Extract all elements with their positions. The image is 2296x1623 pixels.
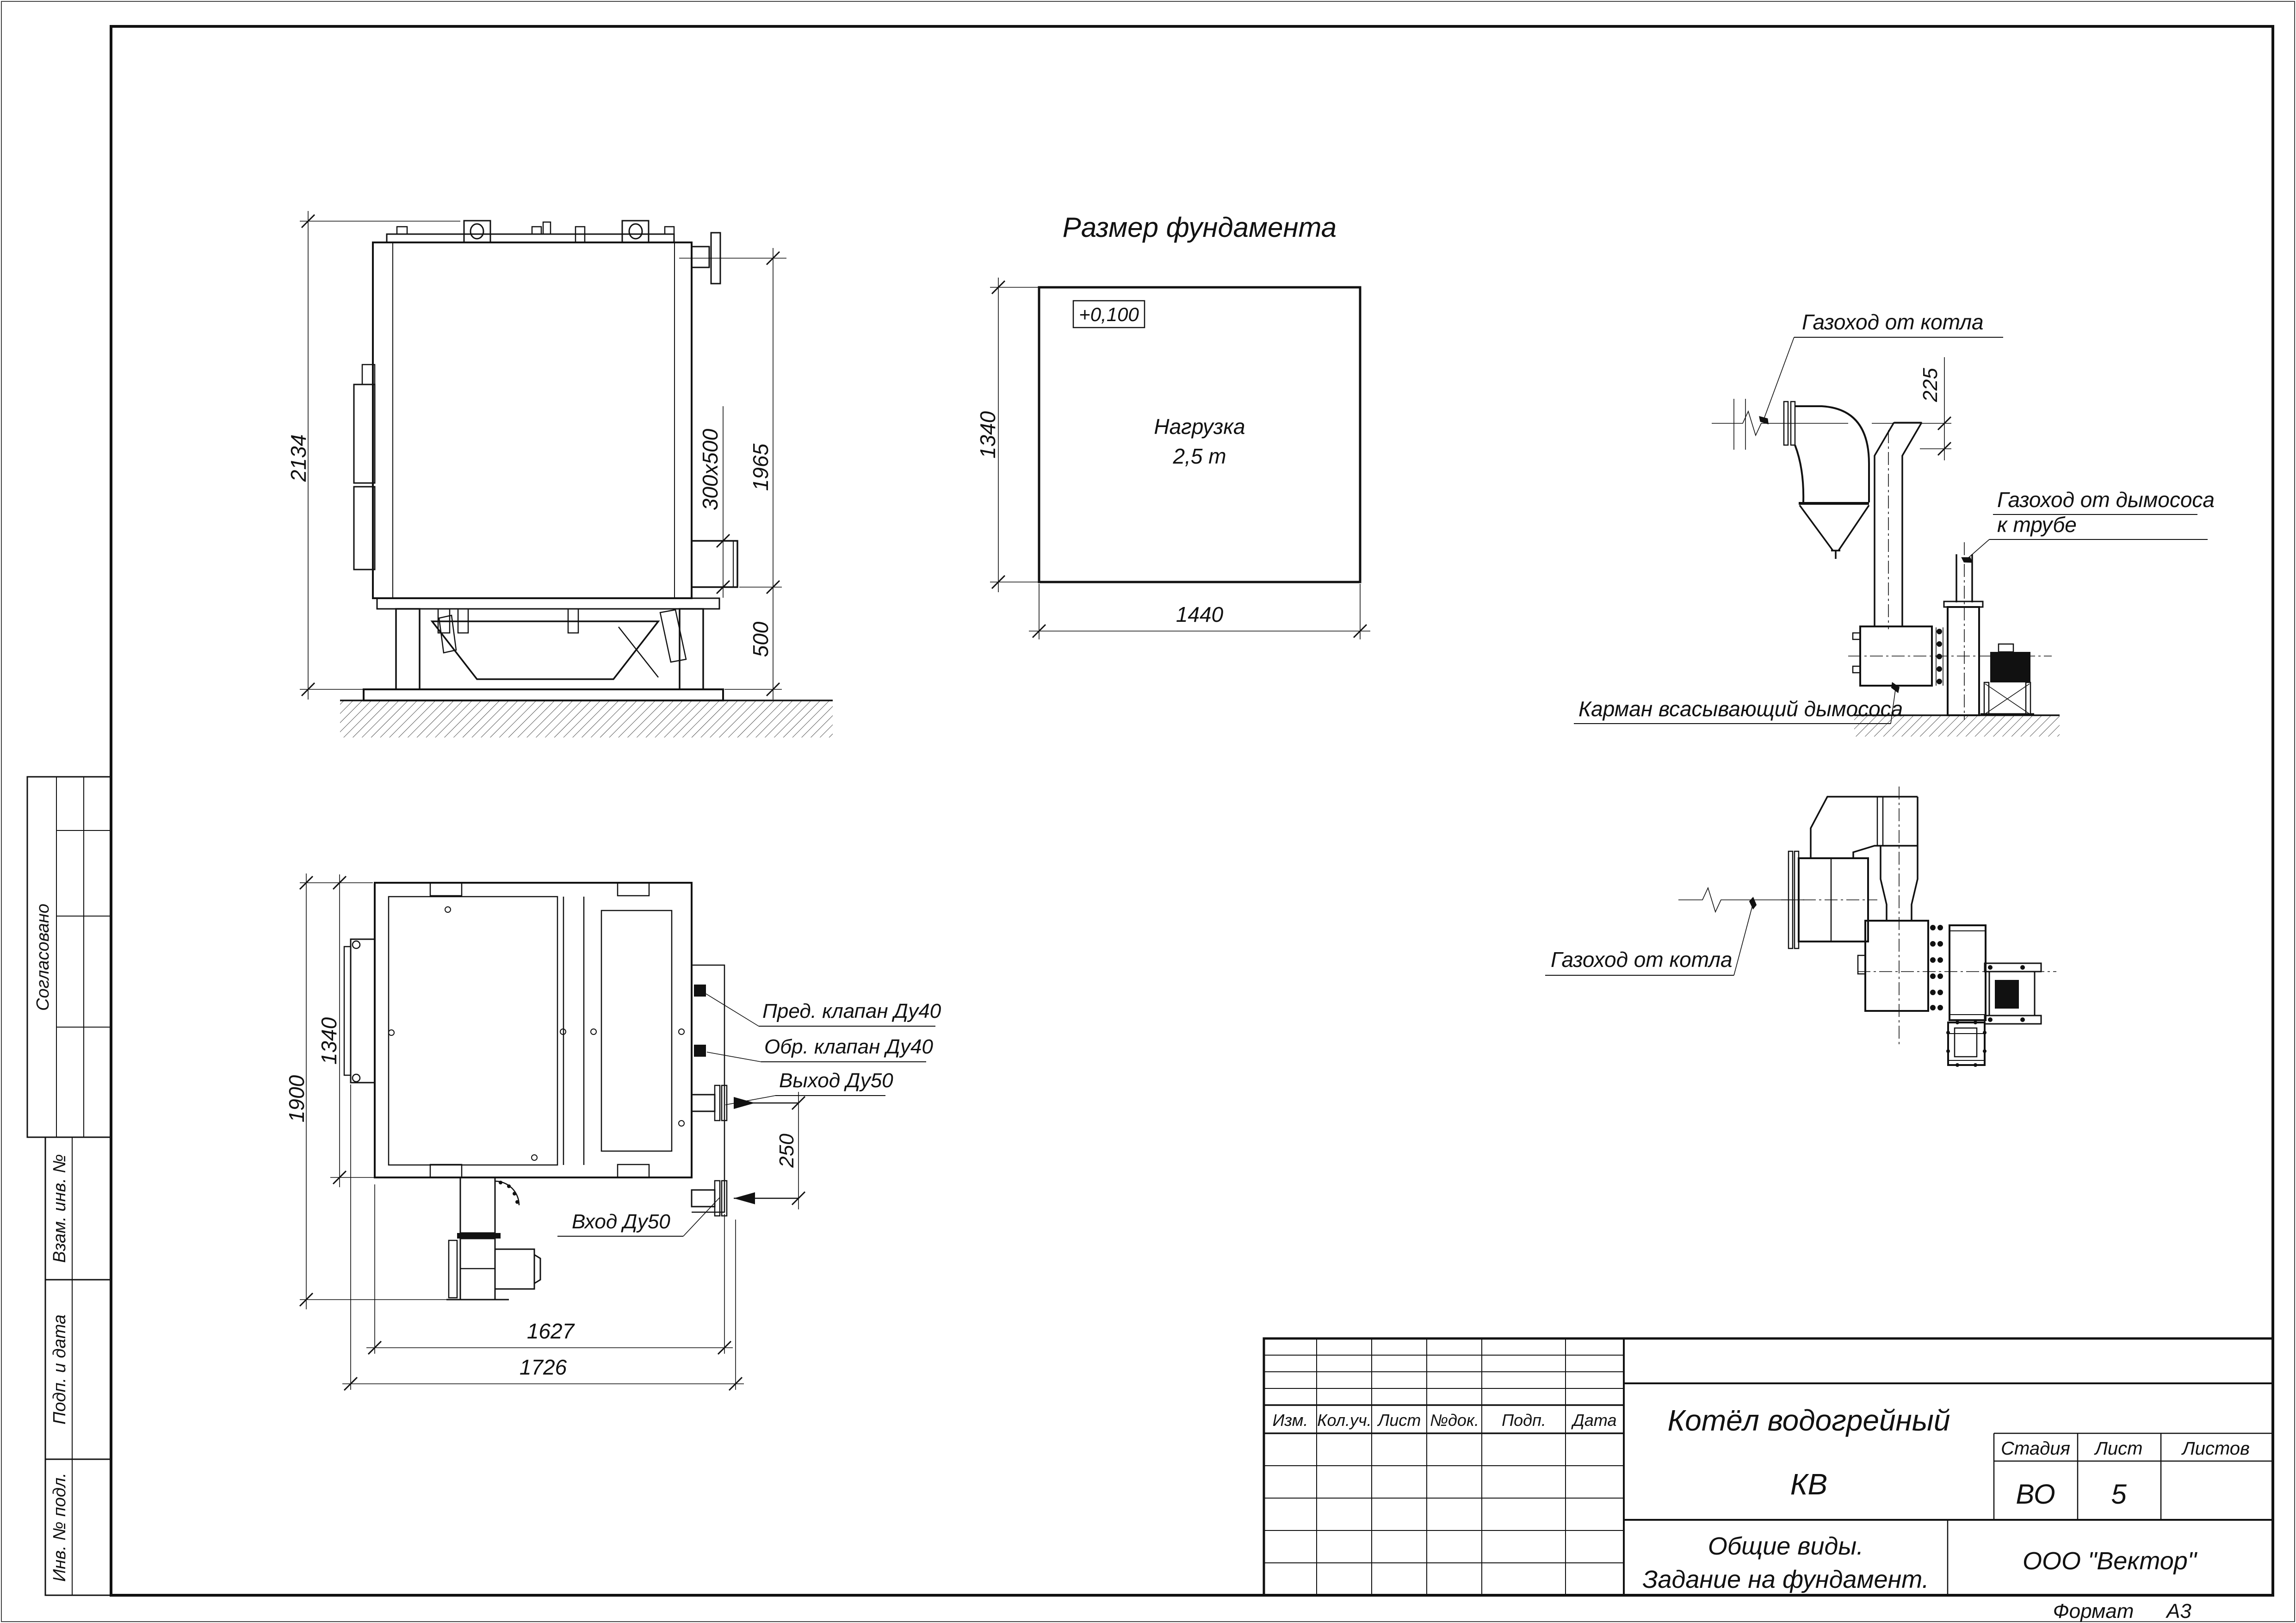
safety-valve (694, 985, 706, 997)
stamp-agreed-label: Согласовано (33, 904, 53, 1011)
sheet-value: 5 (2111, 1479, 2127, 1510)
flue-elev-label-boiler: Газоход от котла (1802, 310, 1984, 334)
dim-1900-label: 1900 (285, 1075, 309, 1122)
dim-225-label: 225 (1919, 368, 1942, 403)
sheets-label: Листов (2181, 1438, 2250, 1459)
flue-elev-label-pocket: Карман всасывающий дымососа (1578, 697, 1903, 721)
format-note: Формат А3 (2053, 1600, 2192, 1623)
dim-1340f-label: 1340 (976, 411, 1000, 458)
drawing-sheet: Согласовано Взам. инв. № Подп. и дата Ин… (0, 0, 2296, 1623)
format-label: Формат (2053, 1600, 2134, 1623)
sheet-label: Лист (2094, 1438, 2143, 1459)
dim-1627-label: 1627 (527, 1319, 575, 1343)
label-outlet: Выход Ду50 (779, 1069, 893, 1092)
label-check-valve: Обр. клапан Ду40 (764, 1035, 934, 1058)
ground-hatch (340, 700, 833, 737)
check-valve (694, 1045, 706, 1057)
label-safety-valve: Пред. клапан Ду40 (762, 1000, 941, 1022)
dim-2134-label: 2134 (286, 434, 310, 482)
col-podp: Подп. (1502, 1411, 1546, 1430)
stamp-inv-number-label: Инв. № подл. (50, 1473, 69, 1582)
col-izm: Изм. (1273, 1411, 1308, 1430)
level-mark: +0,100 (1079, 304, 1139, 325)
label-inlet: Вход Ду50 (572, 1210, 670, 1233)
format-value: А3 (2165, 1600, 2191, 1623)
sheet-edge (1, 1, 2295, 1622)
dim-1726-label: 1726 (520, 1355, 567, 1379)
foundation-title: Размер фундамента (1063, 212, 1337, 243)
stamp-sign-date-label: Подп. и дата (50, 1314, 69, 1425)
doc-title-2: КВ (1790, 1468, 1827, 1501)
col-list: Лист (1377, 1411, 1421, 1430)
dim-1965-label: 1965 (749, 443, 773, 491)
stage-value: ВО (2016, 1479, 2055, 1510)
flue-plan-label-boiler: Газоход от котла (1551, 948, 1733, 972)
company-name: ООО "Вектор" (2023, 1547, 2198, 1575)
flue-elev-label-stack-1: Газоход от дымососа (1997, 488, 2215, 512)
fan-motor (1990, 652, 2030, 682)
load-text-1: Нагрузка (1154, 415, 1245, 439)
subtitle-2: Задание на фундамент. (1642, 1566, 1929, 1593)
dim-1340p-label: 1340 (317, 1017, 341, 1065)
subtitle-1: Общие виды. (1708, 1532, 1863, 1560)
col-koluch: Кол.уч. (1317, 1411, 1371, 1430)
stamp-replace-inv-label: Взам. инв. № (50, 1154, 69, 1263)
flue-elev-label-stack-2: к трубе (1997, 513, 2077, 537)
col-data: Дата (1571, 1411, 1617, 1430)
col-ndok: №док. (1430, 1411, 1479, 1430)
dim-250-label: 250 (775, 1134, 798, 1168)
load-text-2: 2,5 т (1172, 444, 1226, 468)
dim-300x500-label: 300х500 (698, 428, 722, 510)
doc-title-1: Котёл водогрейный (1668, 1404, 1950, 1437)
dim-500-label: 500 (749, 621, 773, 657)
stage-label: Стадия (2001, 1438, 2070, 1459)
dim-1440-label: 1440 (1176, 602, 1224, 626)
